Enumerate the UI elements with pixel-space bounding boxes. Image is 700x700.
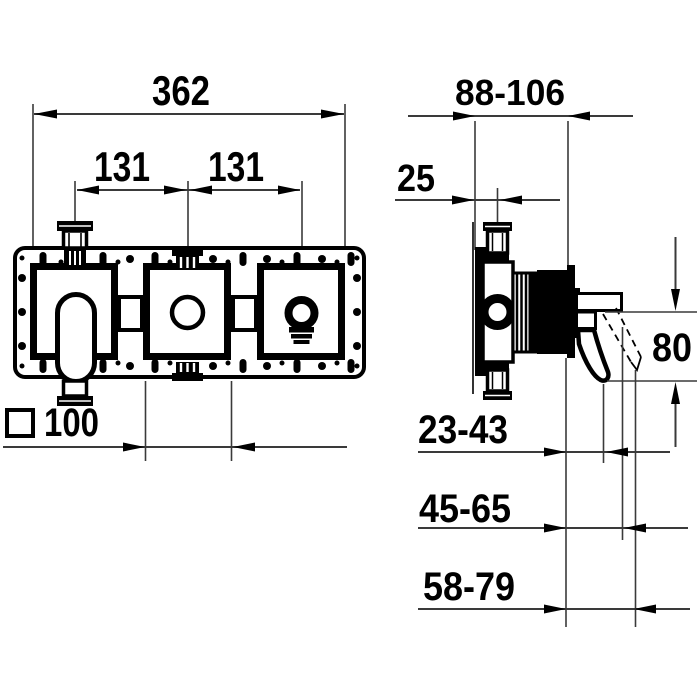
dim-depth-range-label: 88-106 bbox=[455, 72, 565, 113]
top-pipe bbox=[488, 231, 508, 253]
body-port-ring bbox=[484, 299, 511, 326]
dim-spacing-right-label: 131 bbox=[208, 143, 264, 190]
handle-hub bbox=[577, 294, 622, 311]
dim-depth-mid-label: 45-65 bbox=[419, 487, 511, 531]
handle-hub-step bbox=[577, 312, 596, 329]
square-symbol-icon bbox=[7, 410, 33, 436]
module-connector bbox=[233, 297, 256, 330]
dim-handle-drop-label: 80 bbox=[652, 326, 692, 370]
valve-base bbox=[294, 340, 310, 344]
drawing-canvas: 362 131 131 bbox=[0, 0, 700, 700]
dim-spacing-left-label: 131 bbox=[94, 143, 150, 190]
top-pipe bbox=[64, 231, 87, 248]
dim-depth-min-label: 23-43 bbox=[418, 408, 508, 452]
bottom-pipe bbox=[488, 370, 508, 391]
dim-depth-max-label: 58-79 bbox=[423, 565, 515, 609]
bottom-pipe bbox=[64, 381, 87, 396]
dim-inlet-offset-label: 25 bbox=[397, 158, 435, 200]
valve-ring bbox=[289, 300, 315, 326]
escutcheon-block bbox=[537, 270, 567, 354]
valve-base bbox=[291, 334, 312, 339]
cartridge-circle bbox=[172, 297, 203, 328]
bottom-stub-flange bbox=[172, 373, 203, 381]
module-connector bbox=[119, 297, 142, 330]
top-stub-flange bbox=[172, 247, 203, 256]
lever-handle-front bbox=[58, 295, 95, 382]
pipe-joint bbox=[486, 253, 509, 262]
thread-dark-band bbox=[529, 273, 538, 352]
technical-drawing: 362 131 131 bbox=[0, 0, 700, 700]
right-module bbox=[289, 300, 315, 344]
valve-base bbox=[289, 327, 314, 333]
dim-square-size-label: 100 bbox=[44, 401, 99, 445]
trim-plate-edge bbox=[567, 265, 575, 358]
dim-overall-width-label: 362 bbox=[152, 67, 210, 114]
